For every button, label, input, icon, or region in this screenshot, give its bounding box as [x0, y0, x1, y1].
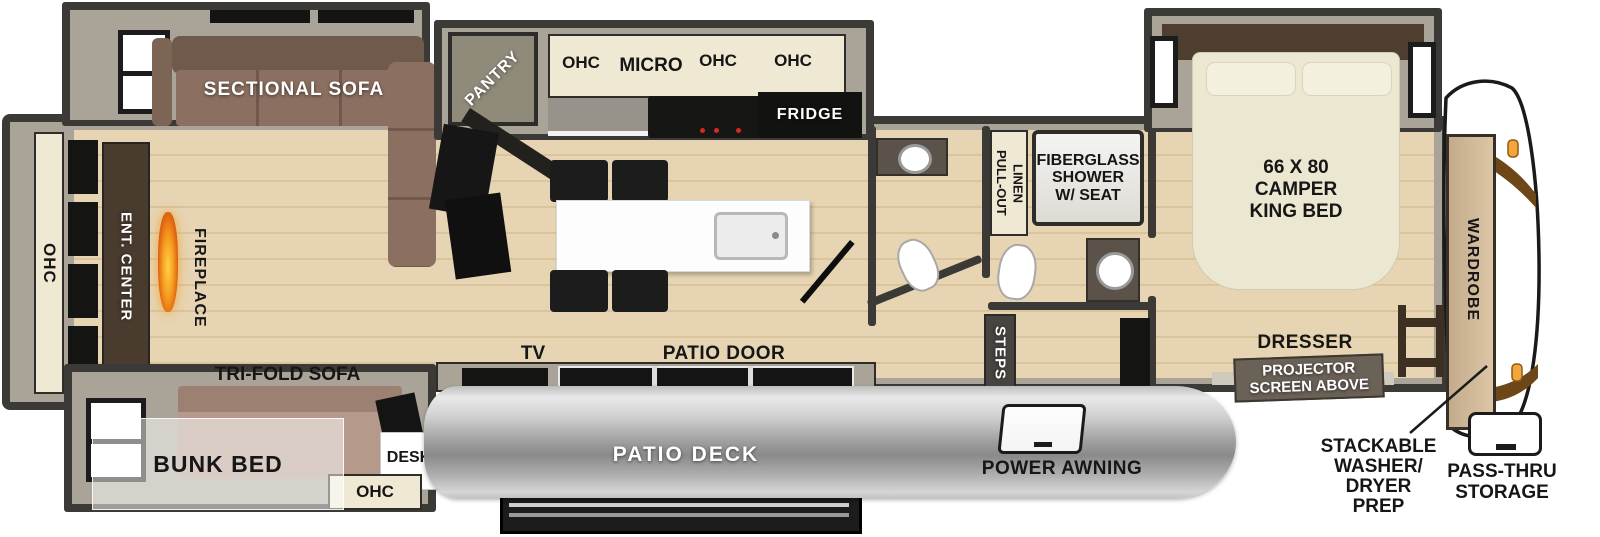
deck-rail: [509, 503, 849, 507]
washer-prep-label: STACKABLE WASHER/ DRYER PREP: [1321, 437, 1437, 517]
pantry: PANTRY: [448, 32, 538, 126]
halfbath-sink: [898, 144, 932, 174]
linen-label: PULL-OUT LINEN: [993, 150, 1026, 216]
bedroom-window-left: [1150, 36, 1178, 108]
island-chair: [612, 270, 668, 312]
theater-chair: [445, 192, 512, 279]
speaker-box: [68, 202, 98, 256]
tv-label: TV: [521, 343, 545, 365]
power-awning-label-wrap: POWER AWNING: [972, 458, 1152, 480]
island-chair: [612, 160, 668, 202]
micro-label-wrap: MICRO: [614, 54, 688, 78]
island-chair: [550, 160, 608, 202]
tv-label-wrap: TV: [500, 344, 566, 364]
power-awning-roll: [424, 386, 1236, 498]
bedroom-wall-upper: [1148, 126, 1156, 238]
dresser-label-wrap: DRESSER: [1240, 332, 1370, 354]
ohc-label: OHC: [699, 51, 737, 71]
patio-door-mullion: [748, 366, 753, 388]
sectional-sofa-back: [172, 36, 424, 74]
sofa-slide-skylight: [318, 10, 414, 23]
entertainment-center: ENT. CENTER: [102, 142, 150, 392]
pass-thru-door-handle: [1496, 444, 1516, 450]
ohc-label: OHC: [562, 53, 600, 73]
island-faucet: [772, 232, 779, 239]
ohc-label-wrap: OHC: [692, 50, 744, 72]
projector-box: PROJECTOR SCREEN ABOVE: [1233, 353, 1384, 402]
shower-label: FIBERGLASS SHOWER W/ SEAT: [1036, 152, 1139, 205]
bed-pillow: [1302, 62, 1392, 96]
pass-thru-label-wrap: PASS-THRU STORAGE: [1438, 460, 1566, 506]
clearance-light-icon: [1508, 140, 1518, 157]
patio-deck-label: PATIO DECK: [613, 443, 759, 467]
king-bed-label-wrap: 66 X 80 CAMPER KING BED: [1200, 152, 1392, 228]
entry-steps: STEPS: [984, 314, 1016, 392]
wall-tv: [462, 368, 548, 386]
island-chair: [550, 270, 608, 312]
patio-door-label-wrap: PATIO DOOR: [638, 344, 810, 364]
shower: FIBERGLASS SHOWER W/ SEAT: [1032, 130, 1144, 226]
tri-fold-label: TRI-FOLD SOFA: [215, 364, 361, 386]
halfbath-wall-right: [982, 126, 990, 278]
sofa-slide-skylight: [210, 10, 310, 23]
patio-door-label: PATIO DOOR: [663, 343, 786, 365]
wardrobe-label-wrap: WARDROBE: [1452, 188, 1492, 352]
fridge-label: FRIDGE: [777, 106, 843, 124]
power-awning-label: POWER AWNING: [982, 458, 1142, 480]
sectional-sofa-label: SECTIONAL SOFA: [204, 79, 384, 101]
speaker-box: [68, 140, 98, 194]
sectional-sofa-label-wrap: SECTIONAL SOFA: [178, 78, 410, 102]
patio-deck-label-wrap: PATIO DECK: [598, 442, 774, 468]
bed-pillow: [1206, 62, 1296, 96]
stove-burner: [714, 128, 719, 133]
rv-floorplan: OHC ENT. CENTER FIREPLACE SECTIONAL SOFA…: [0, 0, 1600, 537]
pass-thru-label: PASS-THRU STORAGE: [1447, 462, 1556, 504]
ohc-label: OHC: [774, 51, 812, 71]
king-bed-label: 66 X 80 CAMPER KING BED: [1250, 157, 1343, 223]
pantry-label: PANTRY: [462, 48, 524, 110]
speaker-box: [68, 264, 98, 318]
fireplace-flame: [158, 212, 178, 312]
fridge: FRIDGE: [758, 92, 862, 138]
tri-fold-label-wrap: TRI-FOLD SOFA: [180, 364, 395, 386]
clearance-light-icon: [1512, 364, 1522, 381]
tri-fold-sofa-back: [178, 386, 402, 412]
patio-door-glass: [558, 366, 854, 388]
rear-ohc-cabinet: OHC: [34, 132, 64, 394]
bath-sink: [1096, 252, 1134, 290]
ohc-label-wrap: OHC: [764, 50, 822, 72]
stove-burner: [736, 128, 741, 133]
ohc-label-wrap: OHC: [556, 52, 606, 74]
linen-closet: PULL-OUT LINEN: [990, 130, 1028, 236]
bath-wall-bottom: [988, 302, 1156, 310]
ent-center-label: ENT. CENTER: [118, 212, 135, 321]
washer-prep-label-wrap: STACKABLE WASHER/ DRYER PREP: [1306, 432, 1451, 522]
wardrobe-label: WARDROBE: [1463, 218, 1481, 321]
stove-burner: [700, 128, 705, 133]
bunk-bed-label: BUNK BED: [153, 451, 282, 478]
washer-callout-line: [1405, 358, 1495, 438]
projector-label: PROJECTOR SCREEN ABOVE: [1249, 359, 1370, 398]
sectional-sofa-arm: [152, 38, 172, 126]
entry-door-handle: [1034, 442, 1052, 447]
rear-ohc-label: OHC: [39, 243, 59, 284]
micro-label: MICRO: [619, 55, 682, 77]
desk-ohc-label: OHC: [356, 482, 394, 502]
fireplace-label: FIREPLACE: [190, 228, 208, 328]
patio-door-mullion: [652, 366, 657, 388]
fireplace-label-wrap: FIREPLACE: [184, 198, 214, 358]
steps-label: STEPS: [992, 326, 1009, 380]
dresser-label: DRESSER: [1257, 332, 1352, 354]
bunk-bed-overlay: BUNK BED: [92, 418, 344, 510]
hall-cabinet: [1120, 318, 1150, 388]
deck-rail: [509, 513, 849, 517]
